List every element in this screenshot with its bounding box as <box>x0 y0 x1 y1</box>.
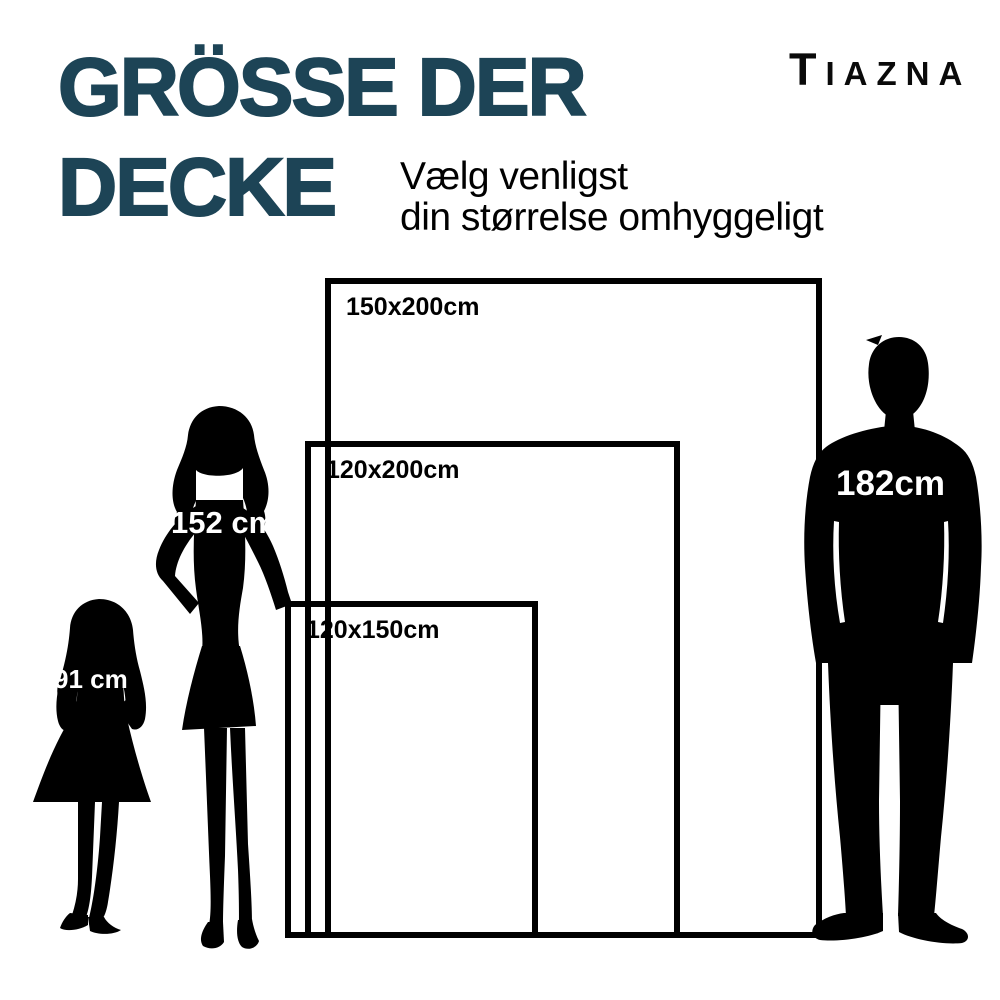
page-title-line1: GRÖSSE DER <box>58 38 585 138</box>
man-silhouette-icon <box>786 331 994 953</box>
page-subtitle-line1: Vælg venligst <box>400 156 823 197</box>
size-guide-infographic: GRÖSSE DER DECKE Vælg venligst din størr… <box>0 0 1000 1000</box>
girl-height-label: 91 cm <box>54 664 128 695</box>
size-box-label: 120x200cm <box>311 447 459 485</box>
page-subtitle-line2: din størrelse omhyggeligt <box>400 197 823 238</box>
brand-logo: TIAZNA <box>789 44 971 96</box>
woman-height-label: 152 cm <box>171 505 276 541</box>
size-box-120x150: 120x150cm <box>285 601 538 938</box>
man-height-label: 182cm <box>836 464 945 504</box>
size-box-label: 120x150cm <box>291 607 439 645</box>
size-box-label: 150x200cm <box>331 284 479 322</box>
page-subtitle: Vælg venligst din størrelse omhyggeligt <box>400 156 823 238</box>
woman-silhouette-icon <box>126 404 301 950</box>
